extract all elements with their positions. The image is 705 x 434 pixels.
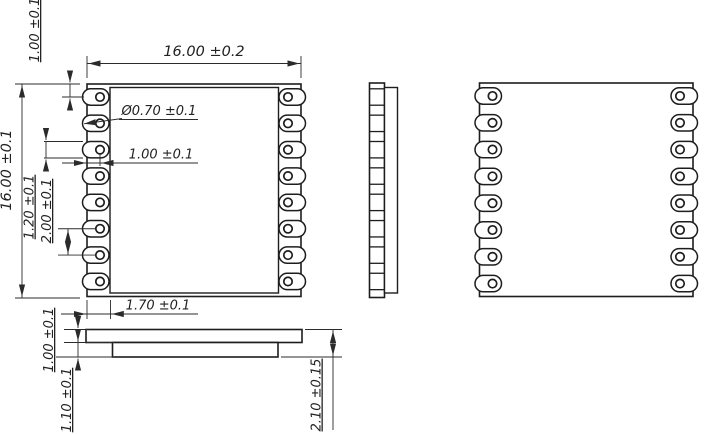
- castellated-pad: [279, 247, 306, 263]
- castellated-pad: [475, 168, 502, 184]
- castellated-pad: [671, 249, 698, 265]
- dim-module-height-label: 16.00 ±0.1: [0, 129, 15, 210]
- castellated-pad: [279, 273, 306, 289]
- castellated-pad: [279, 115, 306, 131]
- dim-module-width-label: 16.00 ±0.2: [163, 44, 244, 60]
- castellated-pad: [475, 222, 502, 238]
- dim-pad-inset: 1.70 ±0.1: [61, 299, 198, 320]
- pcb-bar-outline: [86, 330, 302, 343]
- castellated-pad: [475, 115, 502, 131]
- castellated-pad: [475, 195, 502, 211]
- dim-total-thickness: 2.10 ±0.15: [281, 330, 342, 432]
- castellated-pad: [475, 141, 502, 157]
- castellated-pad: [671, 115, 698, 131]
- castellated-pad: [279, 194, 306, 210]
- dim-total-thickness-label: 2.10 ±0.15: [310, 359, 325, 432]
- castellated-pad: [671, 141, 698, 157]
- view-thickness: [86, 330, 302, 358]
- castellated-pad: [83, 194, 110, 210]
- dim-shield-thickness-label: 1.10 ±0.1: [60, 368, 75, 433]
- shield-bar-outline: [113, 343, 279, 358]
- castellated-pad: [671, 275, 698, 291]
- dim-edge-to-first-pad-label: 1.00 ±0.1: [28, 0, 43, 62]
- module-dimension-drawing: 16.00 ±0.2 16.00 ±0.1 1.00 ±0.1 Ø0.70 ±0…: [0, 0, 705, 434]
- dim-pad-width-label: 1.20 ±0.1: [23, 175, 38, 240]
- castellated-pad: [671, 195, 698, 211]
- dim-pcb-thickness-label: 1.00 ±0.1: [42, 308, 57, 373]
- dim-pcb-thickness: 1.00 ±0.1 1.10 ±0.1: [42, 308, 115, 433]
- view-side: [370, 83, 398, 298]
- dim-pad-inset-label: 1.70 ±0.1: [126, 299, 191, 314]
- castellated-pad: [83, 273, 110, 289]
- module-bottom-outline: [480, 83, 694, 297]
- castellated-pad: [279, 142, 306, 158]
- dim-pad-pitch-label: 2.00 ±0.1: [40, 179, 55, 244]
- castellated-pad: [83, 89, 110, 105]
- dimension-drawing-canvas: 16.00 ±0.2 16.00 ±0.1 1.00 ±0.1 Ø0.70 ±0…: [0, 0, 705, 434]
- castellated-pad: [475, 88, 502, 104]
- castellated-pad: [83, 168, 110, 184]
- castellated-pad: [671, 168, 698, 184]
- dim-hole-diameter-label: Ø0.70 ±0.1: [121, 104, 197, 119]
- castellated-pad: [671, 88, 698, 104]
- castellated-pad: [475, 249, 502, 265]
- castellated-pad: [475, 275, 502, 291]
- castellated-pad: [279, 89, 306, 105]
- castellated-pad: [279, 221, 306, 237]
- castellated-pad: [83, 142, 110, 158]
- castellated-pad: [671, 222, 698, 238]
- dim-module-width: 16.00 ±0.2: [87, 44, 301, 78]
- dim-edge-to-hole-center-label: 1.00 ±0.1: [129, 148, 194, 163]
- castellated-pad: [279, 168, 306, 184]
- shield-side-outline: [385, 88, 398, 294]
- view-bottom: [475, 83, 698, 297]
- dim-edge-to-first-pad: 1.00 ±0.1: [28, 0, 84, 110]
